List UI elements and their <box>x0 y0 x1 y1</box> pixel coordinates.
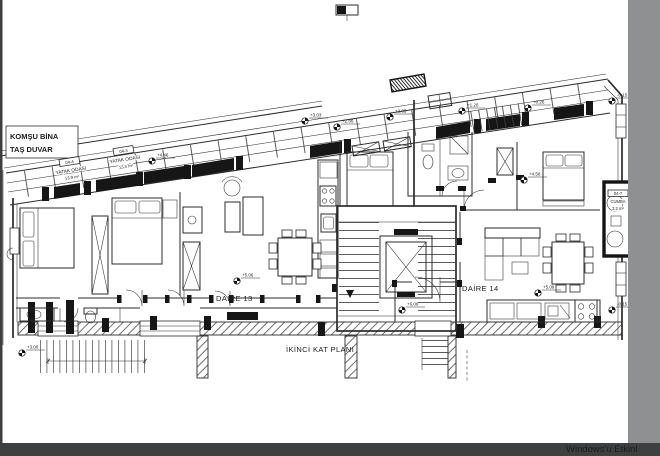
neighbor-note-line2: TAŞ DUVAR <box>10 145 53 154</box>
svg-text:+4.46: +4.46 <box>157 153 169 158</box>
floor-plan-viewer: KOMŞU BİNA TAŞ DUVAR <box>0 0 660 456</box>
svg-text:+6.09: +6.09 <box>407 302 419 307</box>
drawing-sheet <box>0 0 660 456</box>
windows-activation-watermark: Windows'u Etkinl <box>566 444 638 455</box>
apartment-label-daire13: DAİRE 13 <box>216 294 253 303</box>
svg-text:+5.06: +5.06 <box>242 273 254 278</box>
room-name: CUMBA <box>610 199 625 204</box>
neighbor-note-line1: KOMŞU BİNA <box>10 132 59 141</box>
svg-text:-0.15: -0.15 <box>617 93 628 98</box>
svg-text:+3.00: +3.00 <box>27 345 39 350</box>
svg-text:+1.20: +1.20 <box>467 103 479 108</box>
svg-text:-0.15: -0.15 <box>617 302 628 307</box>
room-code: 04-7 <box>614 191 623 196</box>
left-edge-strip <box>0 0 3 456</box>
floor-plan-drawing[interactable]: KOMŞU BİNA TAŞ DUVAR <box>0 0 660 456</box>
svg-text:+0.26: +0.26 <box>533 100 545 105</box>
svg-text:+4.58: +4.58 <box>529 172 541 177</box>
svg-text:+2.86: +2.86 <box>342 119 354 124</box>
svg-text:+3.03: +3.03 <box>310 113 322 118</box>
right-gray-band <box>628 0 660 456</box>
plan-title: İKİNCİ KAT PLANI <box>286 345 354 354</box>
svg-text:+2.85: +2.85 <box>395 109 407 114</box>
bottom-gray-band <box>0 443 660 456</box>
room-area: 3.2 m² <box>612 206 624 211</box>
svg-text:+5.09: +5.09 <box>543 285 555 290</box>
apartment-label-daire14: DAİRE 14 <box>462 284 499 293</box>
